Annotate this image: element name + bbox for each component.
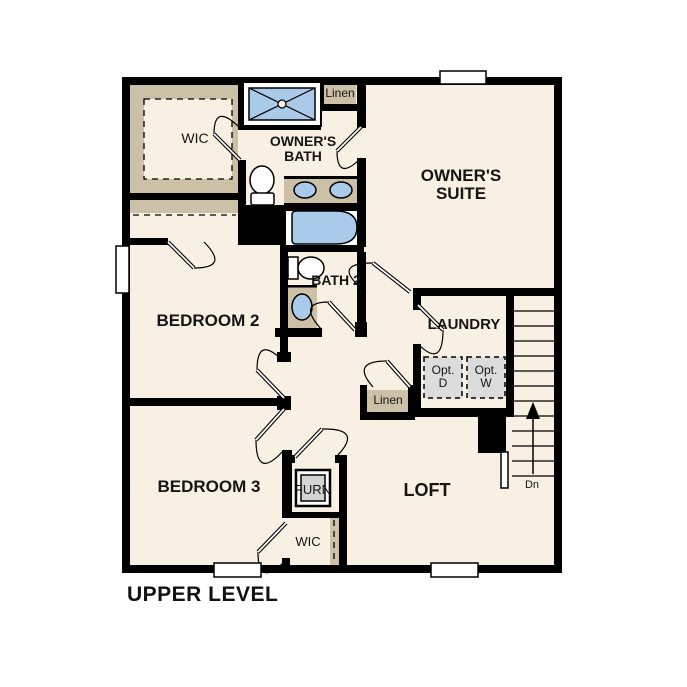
window-bottom-left <box>214 563 261 577</box>
stair-railing <box>501 452 508 488</box>
page-title: UPPER LEVEL <box>127 583 278 607</box>
label-linen-hall: Linen <box>358 394 418 407</box>
label-bedroom2: BEDROOM 2 <box>138 312 278 330</box>
label-opt-dryer: Opt. D <box>426 364 460 390</box>
label-owners-suite: OWNER'S SUITE <box>401 167 521 204</box>
label-linen-upper: Linen <box>310 87 370 100</box>
window-bottom-right <box>431 563 478 577</box>
label-wic-lower: WIC <box>278 535 338 549</box>
label-bedroom3: BEDROOM 3 <box>139 478 279 496</box>
label-laundry: LAUNDRY <box>414 317 514 333</box>
label-opt-washer: Opt. W <box>469 364 503 390</box>
floorplan-drawing <box>0 0 687 687</box>
label-owners-bath: OWNER'S BATH <box>257 134 349 164</box>
floorplan-upper-level: WIC OWNER'S BATH Linen OWNER'S SUITE BED… <box>0 0 687 687</box>
label-wic-upper: WIC <box>155 131 235 146</box>
window-top <box>440 71 486 84</box>
label-stairs-dn: Dn <box>517 480 547 492</box>
window-left <box>116 246 129 293</box>
label-furn: FURN <box>283 483 343 497</box>
label-loft: LOFT <box>387 481 467 500</box>
label-bath2: BATH 2 <box>306 273 366 288</box>
